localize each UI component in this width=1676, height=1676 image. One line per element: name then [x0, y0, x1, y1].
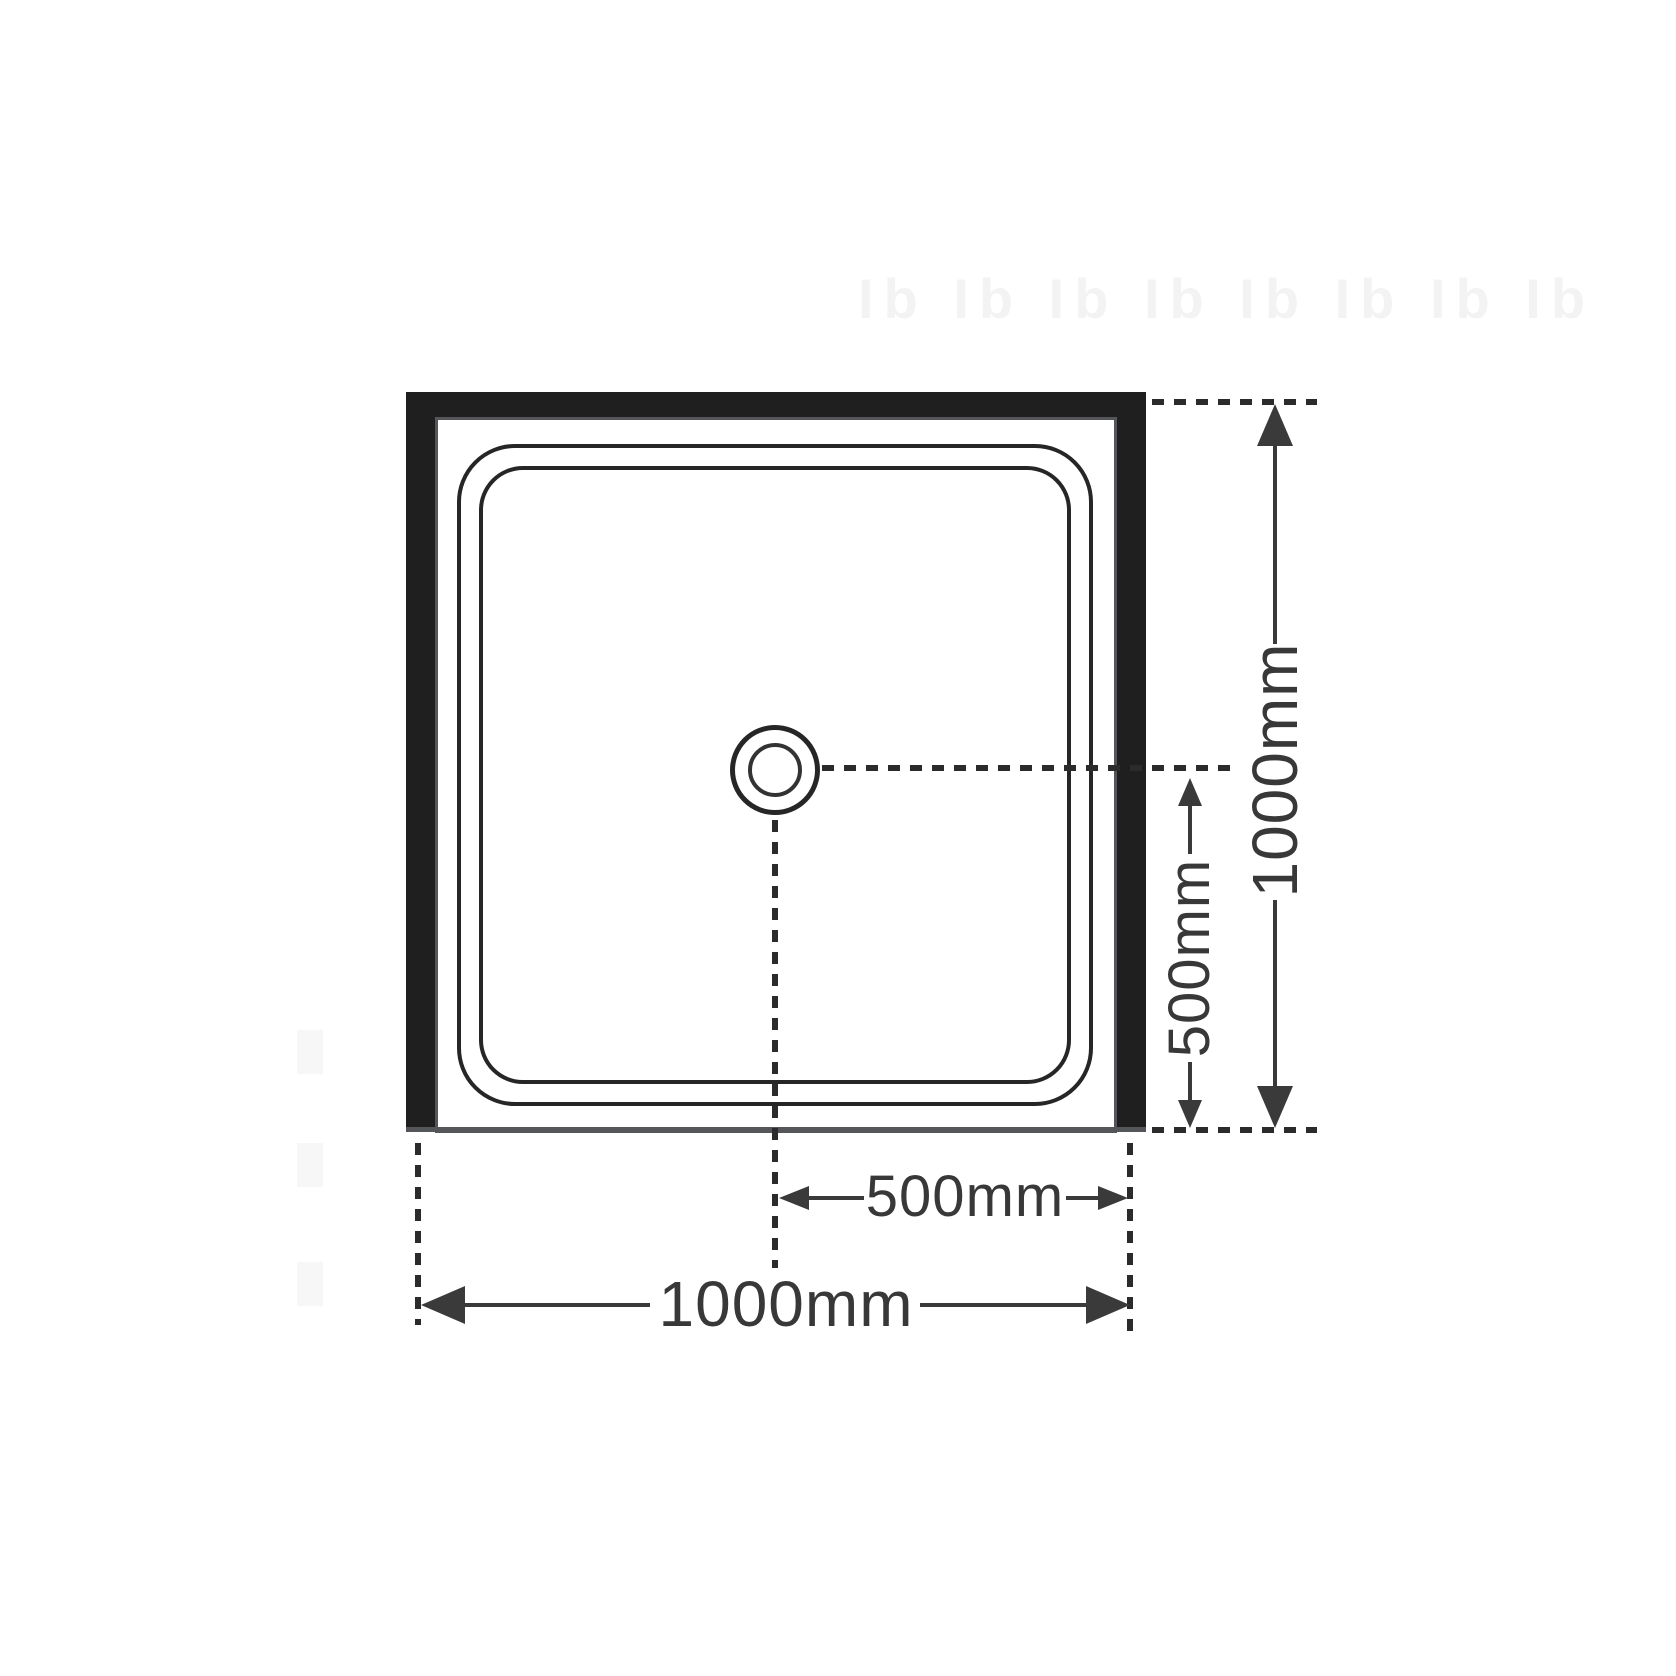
drain-centerline-horizontal	[822, 765, 1230, 771]
dim-width-line-left	[465, 1303, 650, 1307]
watermark-fragment	[297, 1262, 323, 1306]
dim-width-arrowhead-left-icon	[421, 1286, 465, 1324]
dim-height-line-upper	[1273, 444, 1277, 644]
dim-offset-h-label: 500mm	[866, 1168, 1064, 1226]
dim-height-line-lower	[1273, 900, 1277, 1086]
dim-offset-h-arrowhead-left-icon	[779, 1186, 809, 1210]
shower-tray-plan-diagram: Ib Ib Ib Ib Ib Ib Ib Ib 1000mm 500mm 500…	[0, 0, 1676, 1676]
dim-offset-h-line-right	[1066, 1196, 1098, 1200]
dim-width-label: 1000mm	[659, 1272, 914, 1336]
dim-offset-v-line-upper	[1188, 806, 1192, 854]
wall-right	[1117, 392, 1146, 1132]
dim-height-arrowhead-down-icon	[1257, 1086, 1293, 1128]
watermark-fragment	[297, 1143, 323, 1187]
dim-offset-v-label: 500mm	[1161, 859, 1219, 1057]
dim-height-arrowhead-up-icon	[1257, 404, 1293, 446]
dim-width-line-right	[920, 1303, 1086, 1307]
dim-height-label: 1000mm	[1243, 643, 1307, 898]
dim-width-arrowhead-right-icon	[1086, 1286, 1130, 1324]
dim-offset-v-arrowhead-up-icon	[1178, 778, 1202, 806]
wall-top	[406, 392, 1146, 420]
drain-centerline-vertical	[772, 820, 778, 1268]
watermark-fragment	[297, 1030, 323, 1074]
drain-circle-inner	[748, 743, 802, 797]
dim-offset-h-arrowhead-right-icon	[1098, 1186, 1128, 1210]
watermark-text: Ib Ib Ib Ib Ib Ib Ib Ib	[858, 266, 1595, 331]
dim-offset-h-line-left	[809, 1196, 864, 1200]
dim-offset-v-arrowhead-down-icon	[1178, 1100, 1202, 1128]
wall-left	[406, 392, 435, 1132]
dim-offset-v-line-lower	[1188, 1062, 1192, 1102]
